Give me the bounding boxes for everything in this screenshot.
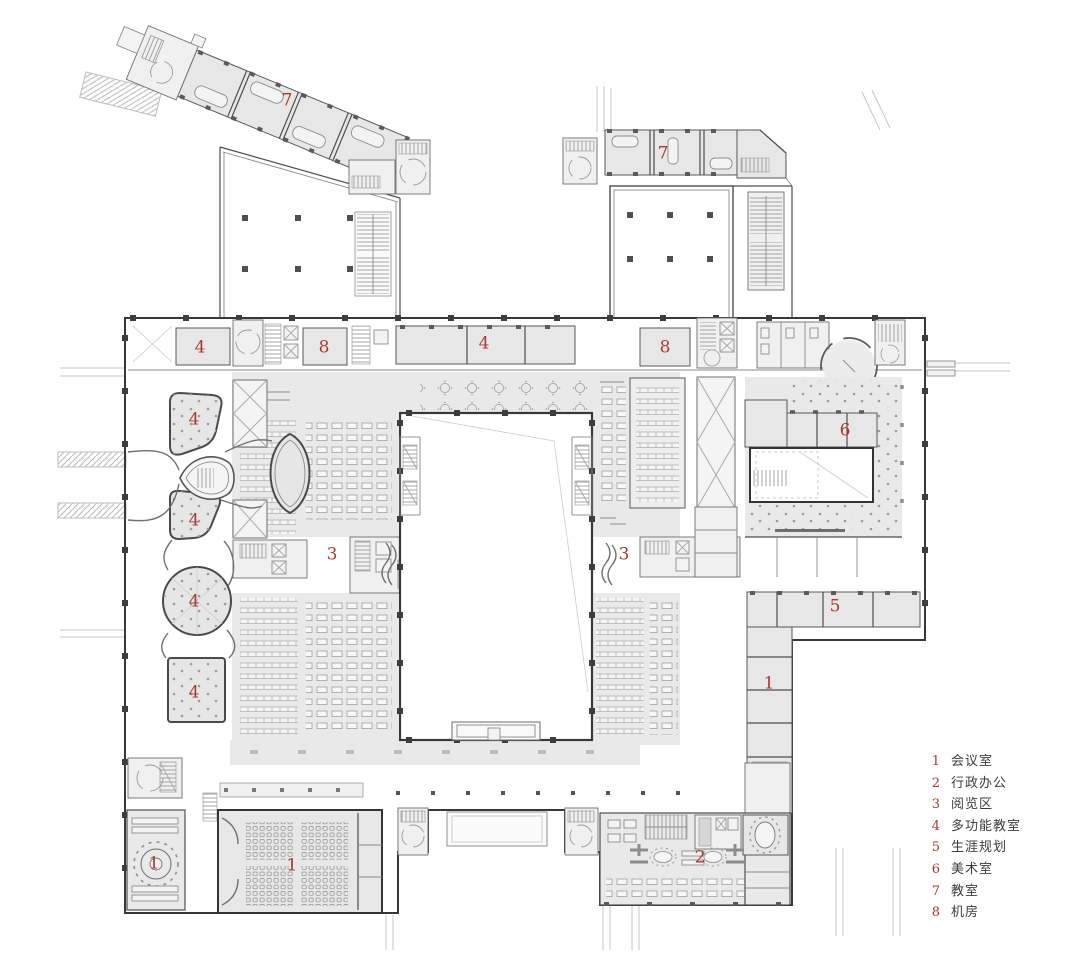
art-room-block: [745, 377, 902, 577]
legend-item-2: 2行政办公: [926, 772, 1021, 794]
floor-plan-canvas: 774848464334541112 1会议室2行政办公3阅览区4多功能教室5生…: [0, 0, 1080, 976]
legend-item-4: 4多功能教室: [926, 815, 1021, 837]
auditorium: [218, 783, 382, 913]
legend-item-3: 3阅览区: [926, 793, 1021, 815]
legend: 1会议室2行政办公3阅览区4多功能教室5生涯规划6美术室7教室8机房: [926, 750, 1021, 923]
meeting-room-stack: [745, 627, 792, 813]
legend-item-label: 会议室: [951, 750, 993, 769]
legend-item-5: 5生涯规划: [926, 836, 1021, 858]
wing-northeast-classrooms: [563, 130, 792, 186]
legend-item-number: 8: [926, 905, 940, 920]
legend-item-label: 生涯规划: [951, 836, 1007, 855]
central-courtyard: [400, 413, 592, 740]
legend-item-number: 3: [926, 797, 940, 812]
legend-item-7: 7教室: [926, 880, 1021, 902]
legend-item-8: 8机房: [926, 901, 1021, 923]
legend-item-label: 教室: [951, 880, 979, 899]
legend-item-label: 美术室: [951, 858, 993, 877]
legend-item-label: 阅览区: [951, 793, 993, 812]
legend-item-number: 6: [926, 862, 940, 877]
conference-room-round: [127, 758, 217, 910]
floor-plan-drawing: [0, 0, 1080, 976]
legend-item-label: 多功能教室: [951, 815, 1021, 834]
legend-item-number: 5: [926, 840, 940, 855]
legend-item-6: 6美术室: [926, 858, 1021, 880]
courtyard-northeast: [610, 186, 792, 318]
courtyard-northwest: [220, 140, 430, 318]
legend-item-label: 机房: [951, 901, 979, 920]
career-planning-band: [747, 592, 920, 627]
legend-item-label: 行政办公: [951, 772, 1007, 791]
legend-item-number: 4: [926, 819, 940, 834]
legend-item-number: 7: [926, 884, 940, 899]
admin-office-block: [600, 813, 790, 905]
legend-item-1: 1会议室: [926, 750, 1021, 772]
legend-item-number: 1: [926, 754, 940, 769]
legend-item-number: 2: [926, 776, 940, 791]
